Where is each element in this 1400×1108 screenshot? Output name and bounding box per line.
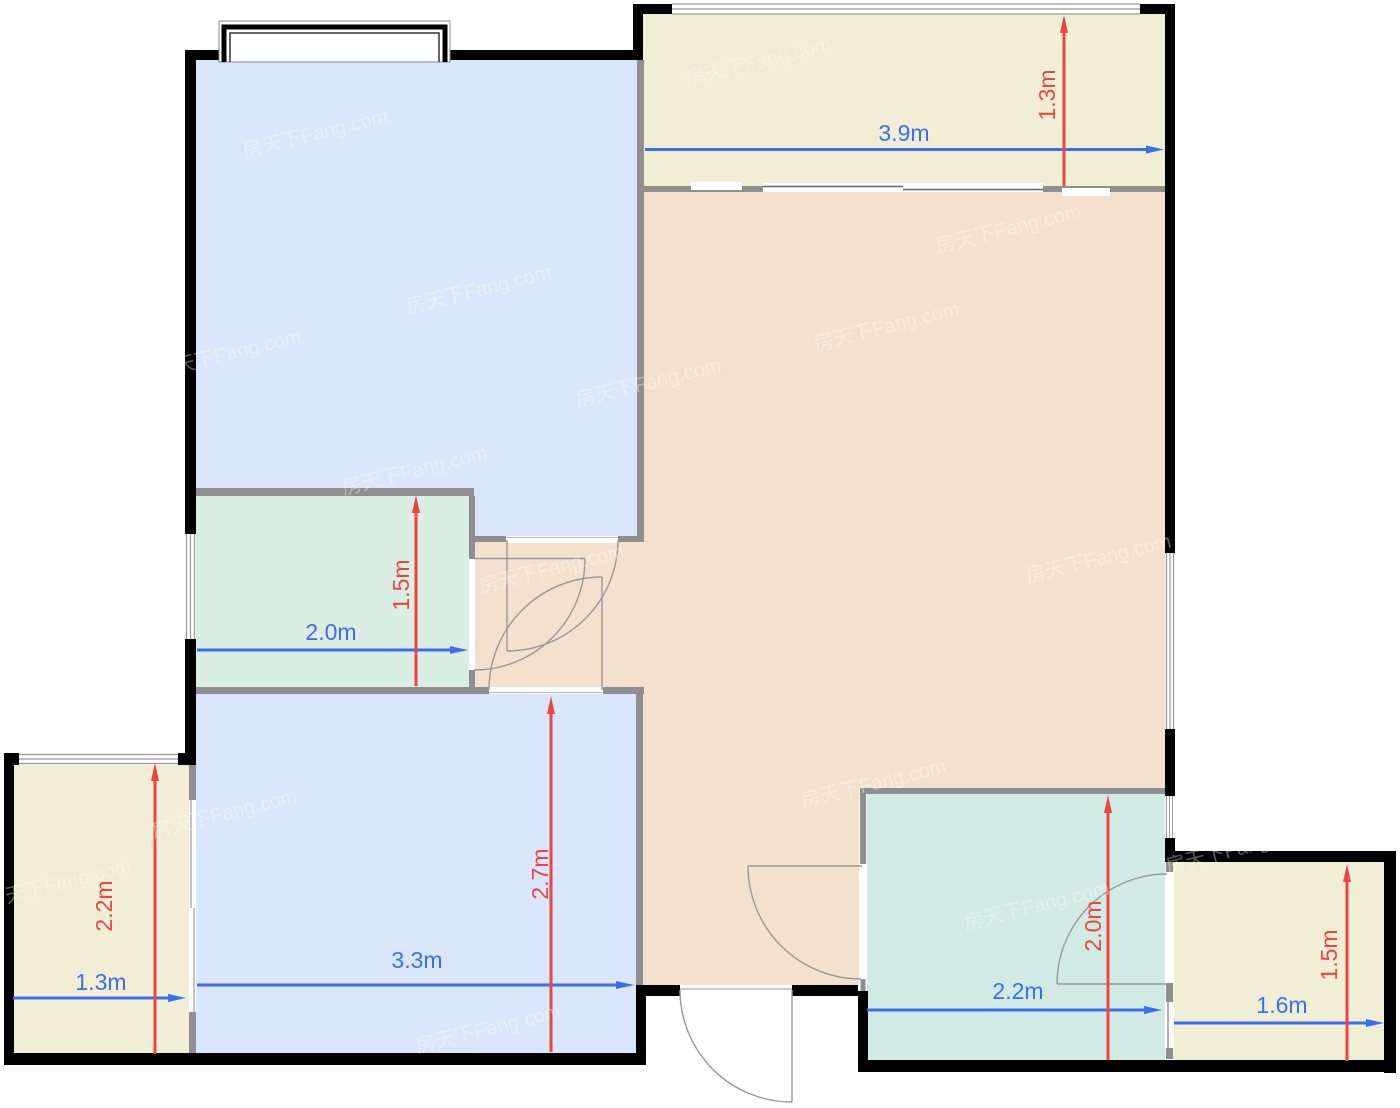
svg-text:2.2m: 2.2m — [91, 880, 117, 931]
svg-text:1.3m: 1.3m — [1034, 69, 1060, 120]
svg-text:2.0m: 2.0m — [1080, 900, 1106, 951]
svg-text:2.0m: 2.0m — [305, 619, 356, 645]
svg-text:2.2m: 2.2m — [992, 978, 1043, 1004]
svg-text:1.5m: 1.5m — [1316, 929, 1342, 980]
svg-text:3.3m: 3.3m — [391, 947, 442, 973]
svg-text:1.6m: 1.6m — [1256, 992, 1307, 1018]
svg-text:1.5m: 1.5m — [388, 559, 414, 610]
svg-text:3.9m: 3.9m — [878, 120, 929, 146]
svg-text:2.7m: 2.7m — [527, 848, 553, 899]
svg-text:1.3m: 1.3m — [75, 969, 126, 995]
